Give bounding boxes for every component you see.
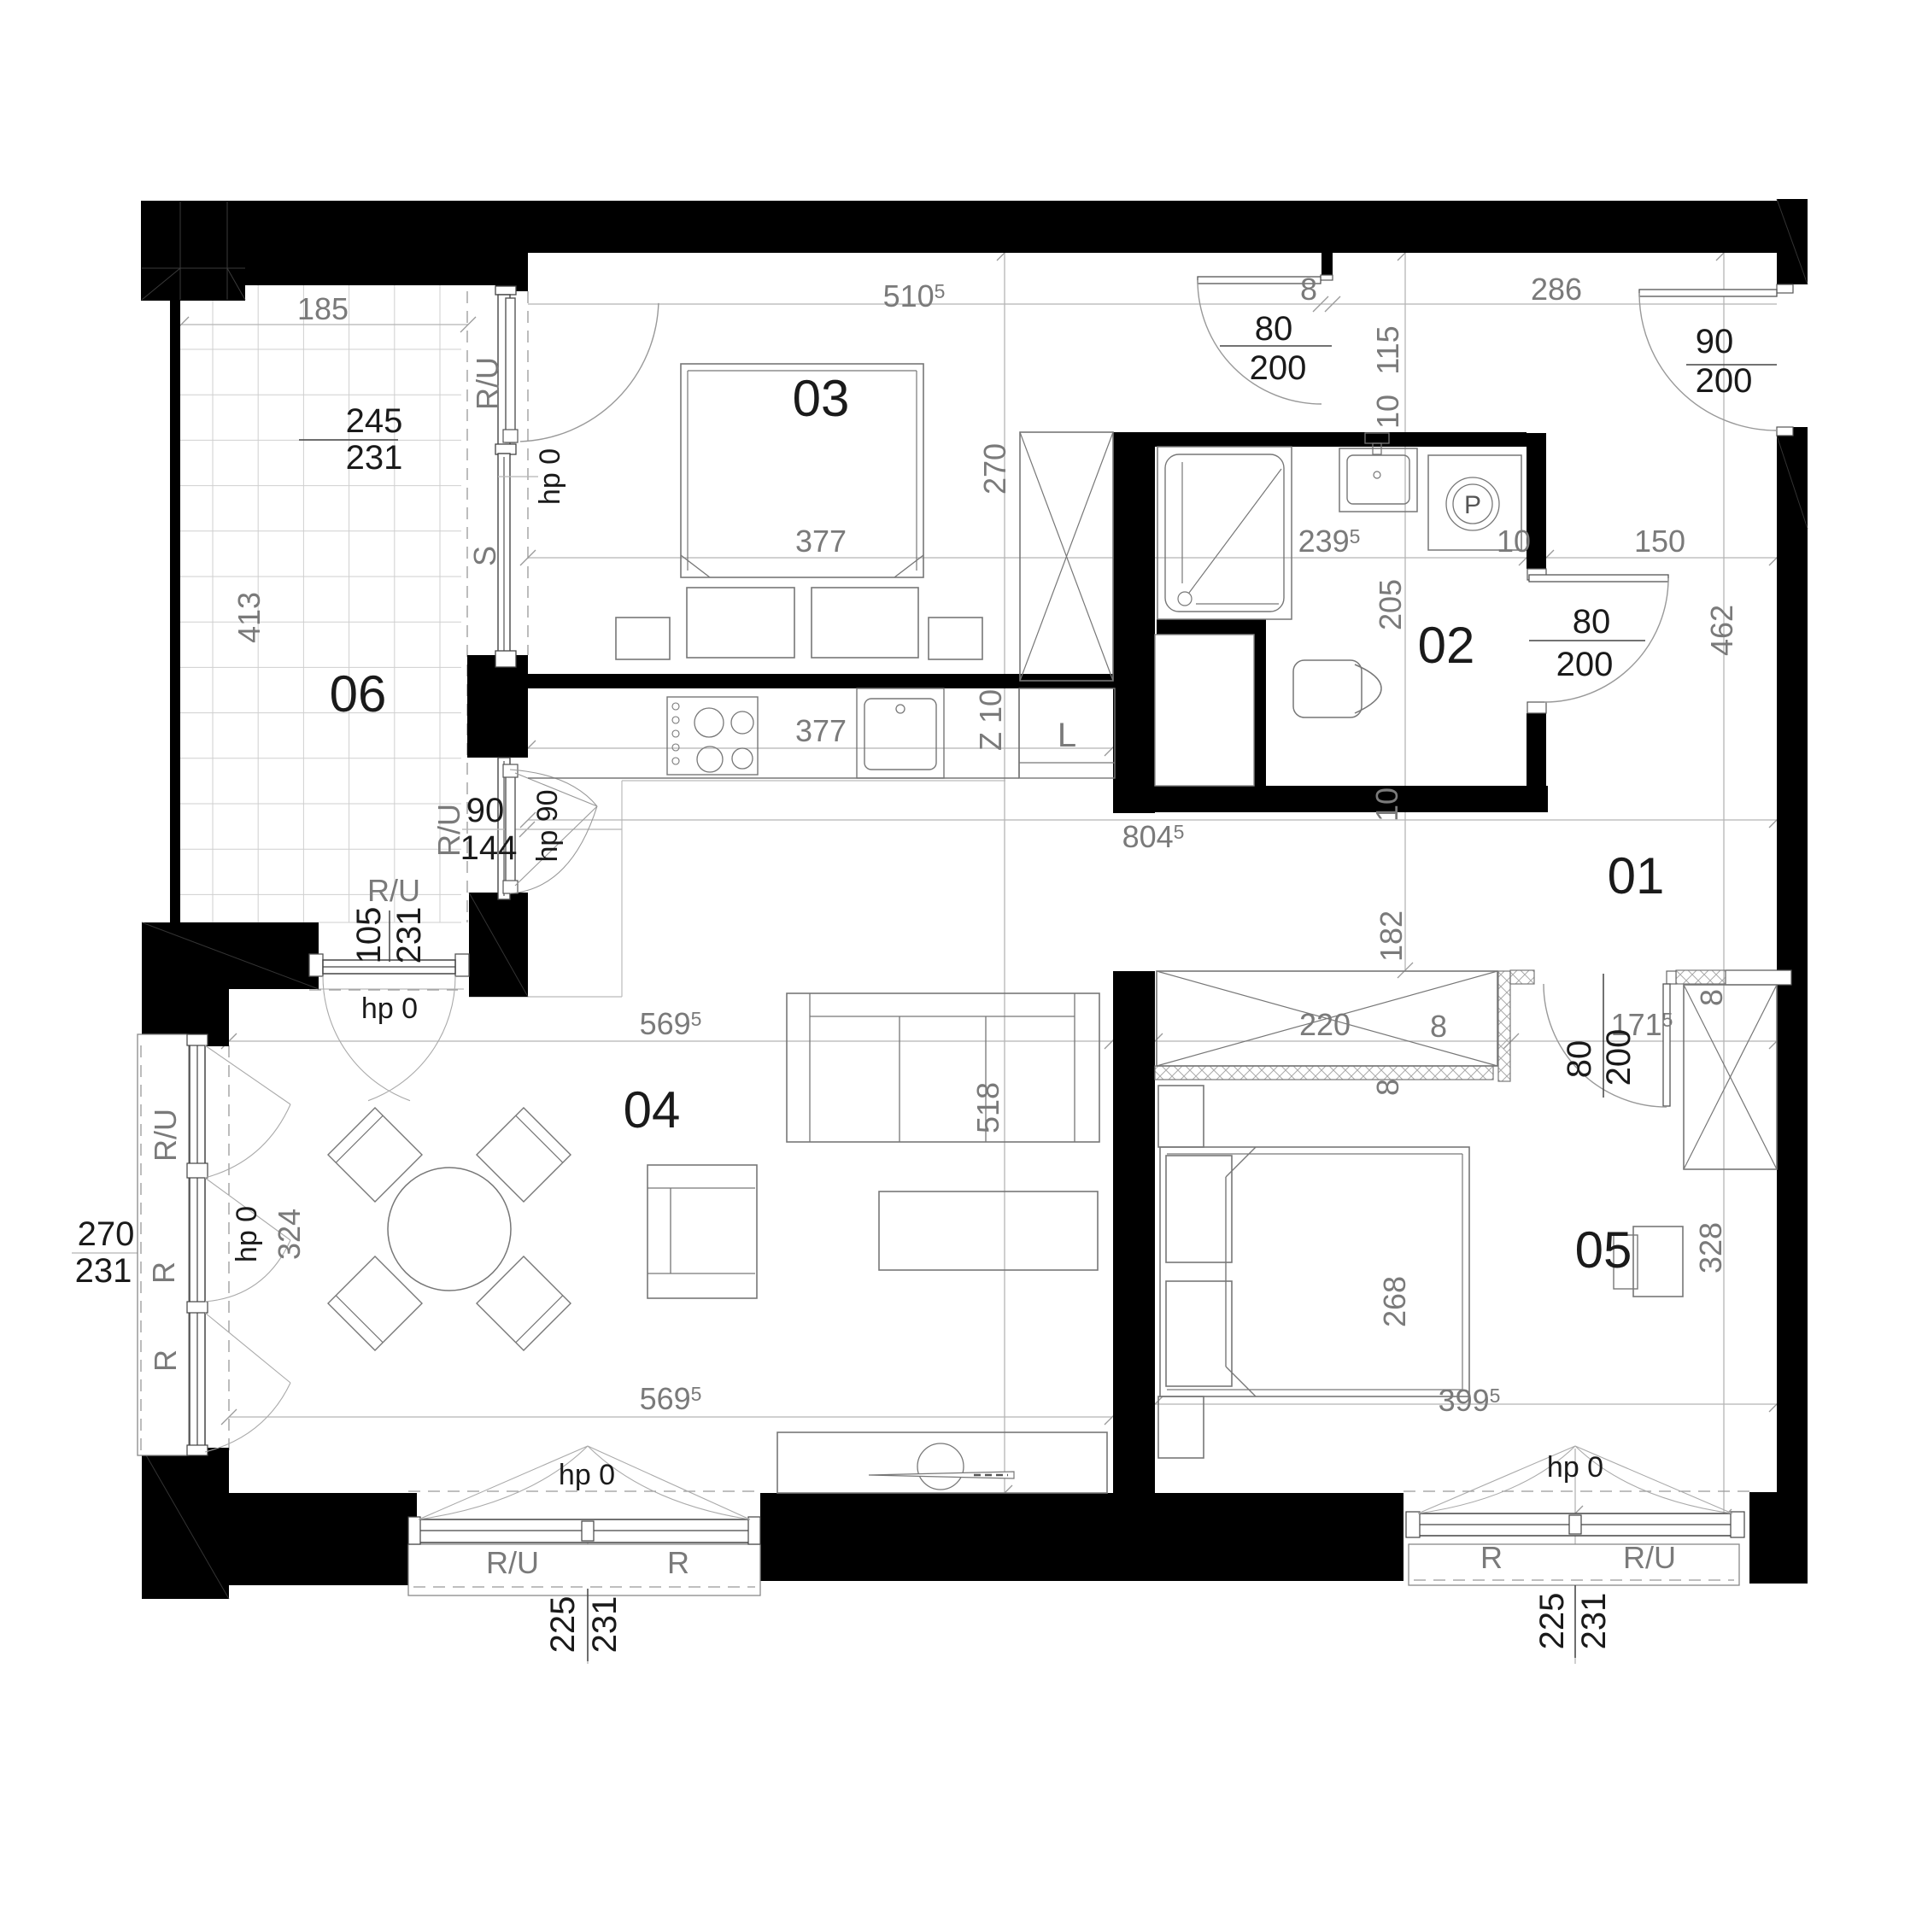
svg-text:R: R	[146, 1262, 181, 1284]
svg-text:462: 462	[1704, 605, 1739, 656]
svg-text:220: 220	[1299, 1007, 1351, 1042]
svg-text:R/U: R/U	[367, 873, 420, 908]
svg-text:182: 182	[1374, 910, 1409, 962]
svg-text:231: 231	[586, 1596, 624, 1654]
svg-text:R/U: R/U	[431, 804, 466, 857]
svg-text:hp 0: hp 0	[534, 448, 566, 505]
svg-text:L: L	[1058, 717, 1076, 754]
svg-text:R/U: R/U	[148, 1109, 183, 1162]
svg-text:06: 06	[330, 665, 387, 723]
svg-text:80: 80	[1561, 1040, 1598, 1079]
svg-text:P: P	[1464, 491, 1481, 519]
svg-text:377: 377	[795, 713, 847, 748]
svg-text:8: 8	[1370, 1079, 1405, 1096]
svg-text:231: 231	[390, 907, 428, 964]
svg-text:413: 413	[231, 592, 267, 643]
svg-text:115: 115	[1370, 325, 1405, 374]
svg-text:hp 0: hp 0	[361, 992, 418, 1025]
svg-text:225: 225	[1533, 1593, 1571, 1650]
svg-text:200: 200	[1250, 349, 1307, 387]
svg-text:205: 205	[1373, 579, 1408, 630]
svg-text:245: 245	[346, 402, 403, 440]
svg-text:hp 0: hp 0	[1547, 1451, 1603, 1484]
svg-text:R/U: R/U	[486, 1545, 539, 1580]
svg-text:286: 286	[1531, 272, 1582, 307]
svg-text:90: 90	[1696, 323, 1734, 360]
svg-text:231: 231	[346, 439, 403, 477]
svg-text:10: 10	[1497, 524, 1531, 559]
svg-text:8: 8	[1694, 989, 1729, 1006]
svg-text:324: 324	[272, 1209, 307, 1260]
svg-text:10: 10	[1370, 395, 1405, 429]
svg-text:270: 270	[977, 443, 1012, 495]
svg-text:Z 10: Z 10	[973, 689, 1008, 751]
svg-text:8: 8	[1430, 1009, 1447, 1044]
svg-text:268: 268	[1377, 1276, 1412, 1327]
svg-text:10: 10	[1369, 787, 1404, 822]
svg-text:231: 231	[1575, 1593, 1613, 1650]
svg-text:80: 80	[1255, 310, 1293, 348]
svg-text:02: 02	[1418, 617, 1475, 674]
svg-text:S: S	[467, 546, 502, 566]
svg-text:200: 200	[1600, 1029, 1638, 1086]
svg-text:518: 518	[970, 1082, 1005, 1133]
svg-text:377: 377	[795, 524, 847, 559]
svg-text:200: 200	[1556, 646, 1614, 683]
svg-text:03: 03	[793, 370, 850, 427]
svg-text:05: 05	[1575, 1221, 1632, 1279]
svg-text:200: 200	[1696, 362, 1753, 400]
svg-text:185: 185	[297, 291, 349, 326]
svg-text:R/U: R/U	[1623, 1540, 1676, 1575]
svg-text:R: R	[148, 1349, 183, 1372]
svg-text:R/U: R/U	[470, 357, 505, 410]
svg-text:150: 150	[1634, 524, 1685, 559]
svg-text:R: R	[1480, 1540, 1503, 1575]
svg-text:hp 90: hp 90	[531, 789, 564, 862]
svg-text:hp 0: hp 0	[559, 1459, 615, 1491]
svg-text:80: 80	[1573, 603, 1611, 641]
svg-text:270: 270	[78, 1215, 135, 1253]
svg-text:328: 328	[1693, 1222, 1728, 1273]
svg-text:105: 105	[350, 907, 388, 964]
svg-text:8: 8	[1300, 272, 1317, 307]
svg-text:04: 04	[624, 1081, 681, 1139]
svg-text:231: 231	[75, 1252, 132, 1290]
svg-text:90: 90	[466, 792, 505, 829]
svg-text:R: R	[667, 1545, 689, 1580]
svg-text:225: 225	[544, 1596, 582, 1654]
svg-text:hp 0: hp 0	[231, 1206, 263, 1262]
svg-text:01: 01	[1608, 847, 1665, 905]
svg-text:144: 144	[460, 829, 518, 867]
